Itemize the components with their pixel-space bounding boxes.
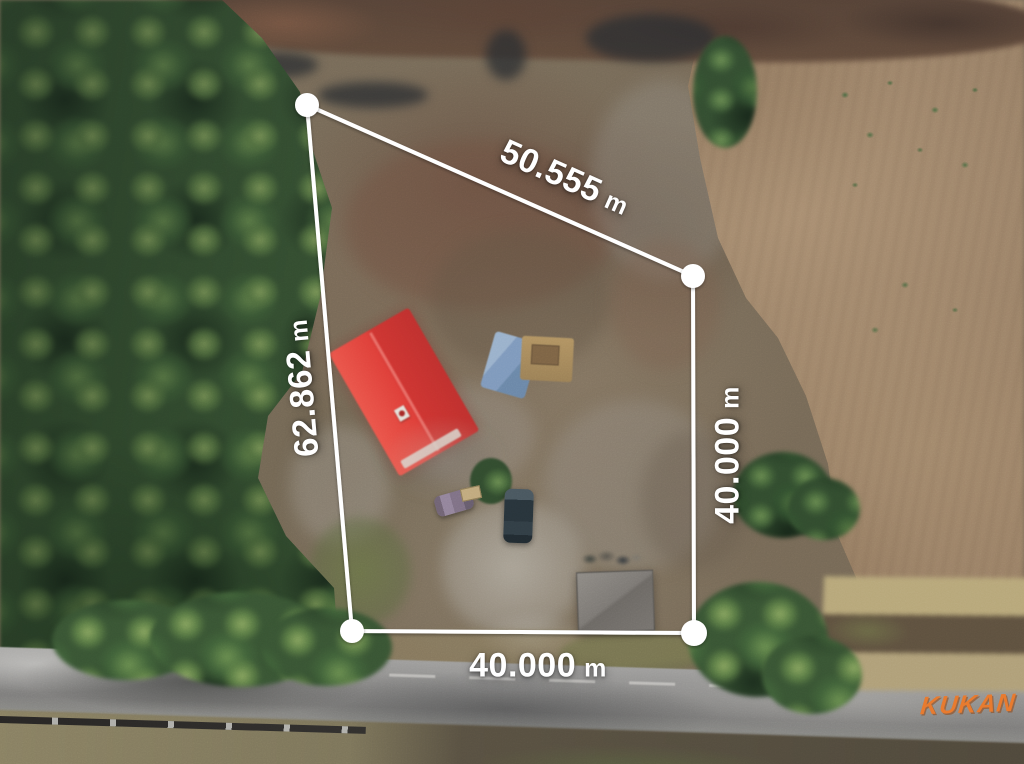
boundary-line-right [693, 276, 694, 633]
boundary-line-bottom [352, 631, 694, 633]
corner-marker-sw [340, 619, 364, 643]
measurement-value: 62.862 [279, 348, 326, 458]
measurement-unit: m [285, 318, 315, 343]
aerial-photo-scene: 50.555m 62.862m 40.000m 40.000m KUKAN [0, 0, 1024, 764]
watermark-logo: KUKAN [919, 689, 1017, 721]
measurement-label-right: 40.000m [709, 386, 748, 524]
boundary-line-top [307, 105, 693, 276]
corner-marker-ne [681, 264, 705, 288]
corner-marker-se [681, 620, 707, 646]
measurement-unit: m [584, 655, 607, 683]
measurement-unit: m [717, 386, 745, 409]
corner-marker-nw [295, 93, 319, 117]
measurement-value: 40.000 [709, 417, 747, 524]
measurement-value: 40.000 [469, 647, 576, 685]
measurement-label-bottom: 40.000m [469, 647, 607, 686]
